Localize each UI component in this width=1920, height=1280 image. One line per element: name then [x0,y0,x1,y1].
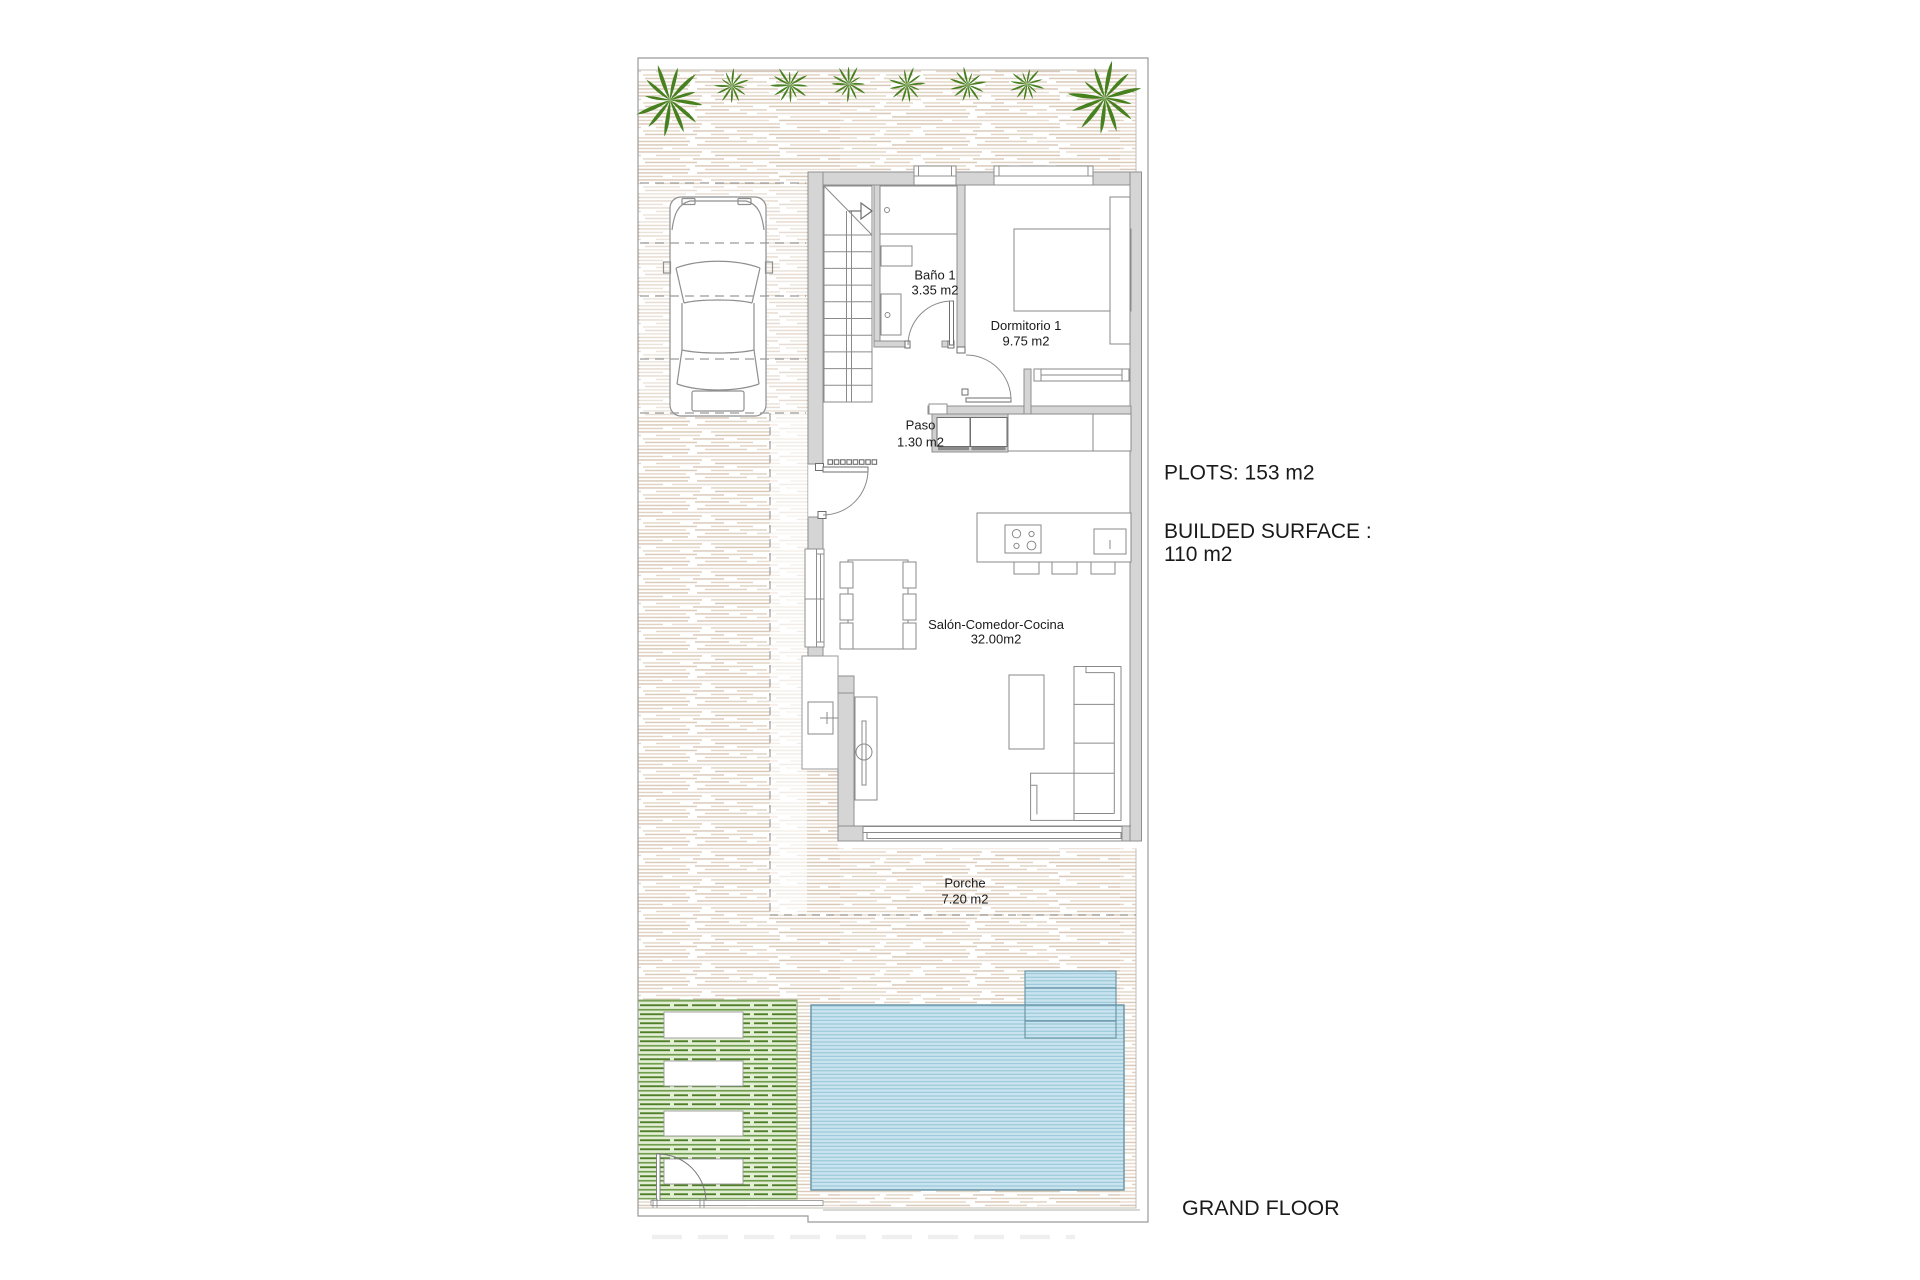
svg-text:Paso: Paso [906,418,936,433]
svg-text:32.00m2: 32.00m2 [971,632,1022,647]
svg-text:Dormitorio 1: Dormitorio 1 [991,318,1062,333]
svg-text:GRAND FLOOR: GRAND FLOOR [1182,1196,1340,1220]
svg-text:9.75 m2: 9.75 m2 [1003,334,1050,349]
svg-text:110 m2: 110 m2 [1164,543,1233,566]
svg-text:BUILDED SURFACE :: BUILDED SURFACE : [1164,520,1372,543]
svg-text:PLOTS: 153 m2: PLOTS: 153 m2 [1164,462,1315,485]
svg-text:1.30 m2: 1.30 m2 [897,435,944,450]
svg-text:Porche: Porche [944,876,985,891]
svg-text:Salón-Comedor-Cocina: Salón-Comedor-Cocina [928,617,1065,632]
svg-text:7.20 m2: 7.20 m2 [942,892,989,907]
svg-text:3.35 m2: 3.35 m2 [912,283,959,298]
svg-text:Baño 1: Baño 1 [914,268,955,283]
